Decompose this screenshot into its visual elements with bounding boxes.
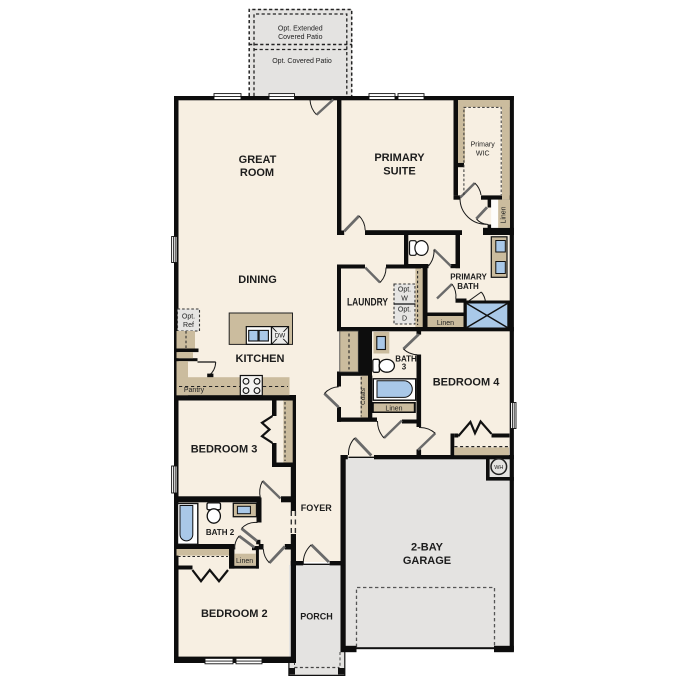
svg-text:KITCHEN: KITCHEN [236, 353, 285, 365]
svg-text:Primary: Primary [471, 141, 496, 148]
svg-text:WIC: WIC [476, 151, 490, 158]
svg-text:WH: WH [494, 465, 503, 471]
svg-text:Ref: Ref [183, 322, 194, 329]
svg-text:SUITE: SUITE [383, 165, 415, 177]
svg-text:Linen: Linen [385, 405, 402, 412]
svg-text:LAUNDRY: LAUNDRY [347, 297, 389, 309]
svg-text:2-BAY: 2-BAY [411, 542, 444, 554]
svg-text:Linen: Linen [236, 558, 253, 565]
svg-text:BEDROOM 3: BEDROOM 3 [191, 444, 258, 456]
svg-text:PRIMARY: PRIMARY [374, 152, 425, 164]
svg-text:D: D [402, 316, 407, 323]
svg-text:Opt.: Opt. [398, 287, 411, 294]
svg-text:Opt. Covered Patio: Opt. Covered Patio [272, 58, 332, 65]
svg-text:BATH 2: BATH 2 [206, 528, 235, 537]
svg-text:Pantry: Pantry [184, 387, 205, 394]
svg-text:BATH: BATH [457, 282, 479, 291]
svg-text:Opt. Extended: Opt. Extended [278, 25, 323, 32]
svg-text:Opt.: Opt. [398, 307, 411, 314]
svg-text:ROOM: ROOM [240, 167, 274, 179]
svg-text:DINING: DINING [238, 274, 277, 286]
svg-text:GARAGE: GARAGE [403, 555, 451, 567]
svg-text:Linen: Linen [500, 206, 507, 223]
svg-text:Linen: Linen [437, 320, 454, 327]
svg-text:Opt.: Opt. [182, 313, 195, 320]
svg-text:BEDROOM 4: BEDROOM 4 [433, 377, 501, 389]
svg-text:GREAT: GREAT [239, 154, 277, 166]
svg-text:Coats: Coats [360, 387, 367, 405]
svg-text:BEDROOM 2: BEDROOM 2 [201, 608, 268, 620]
svg-text:W: W [401, 296, 408, 303]
svg-text:PRIMARY: PRIMARY [450, 273, 487, 282]
svg-text:DW: DW [275, 333, 286, 340]
svg-text:FOYER: FOYER [301, 503, 333, 513]
svg-text:3: 3 [402, 362, 407, 371]
svg-text:Covered Patio: Covered Patio [278, 34, 322, 41]
svg-text:PORCH: PORCH [300, 611, 333, 621]
